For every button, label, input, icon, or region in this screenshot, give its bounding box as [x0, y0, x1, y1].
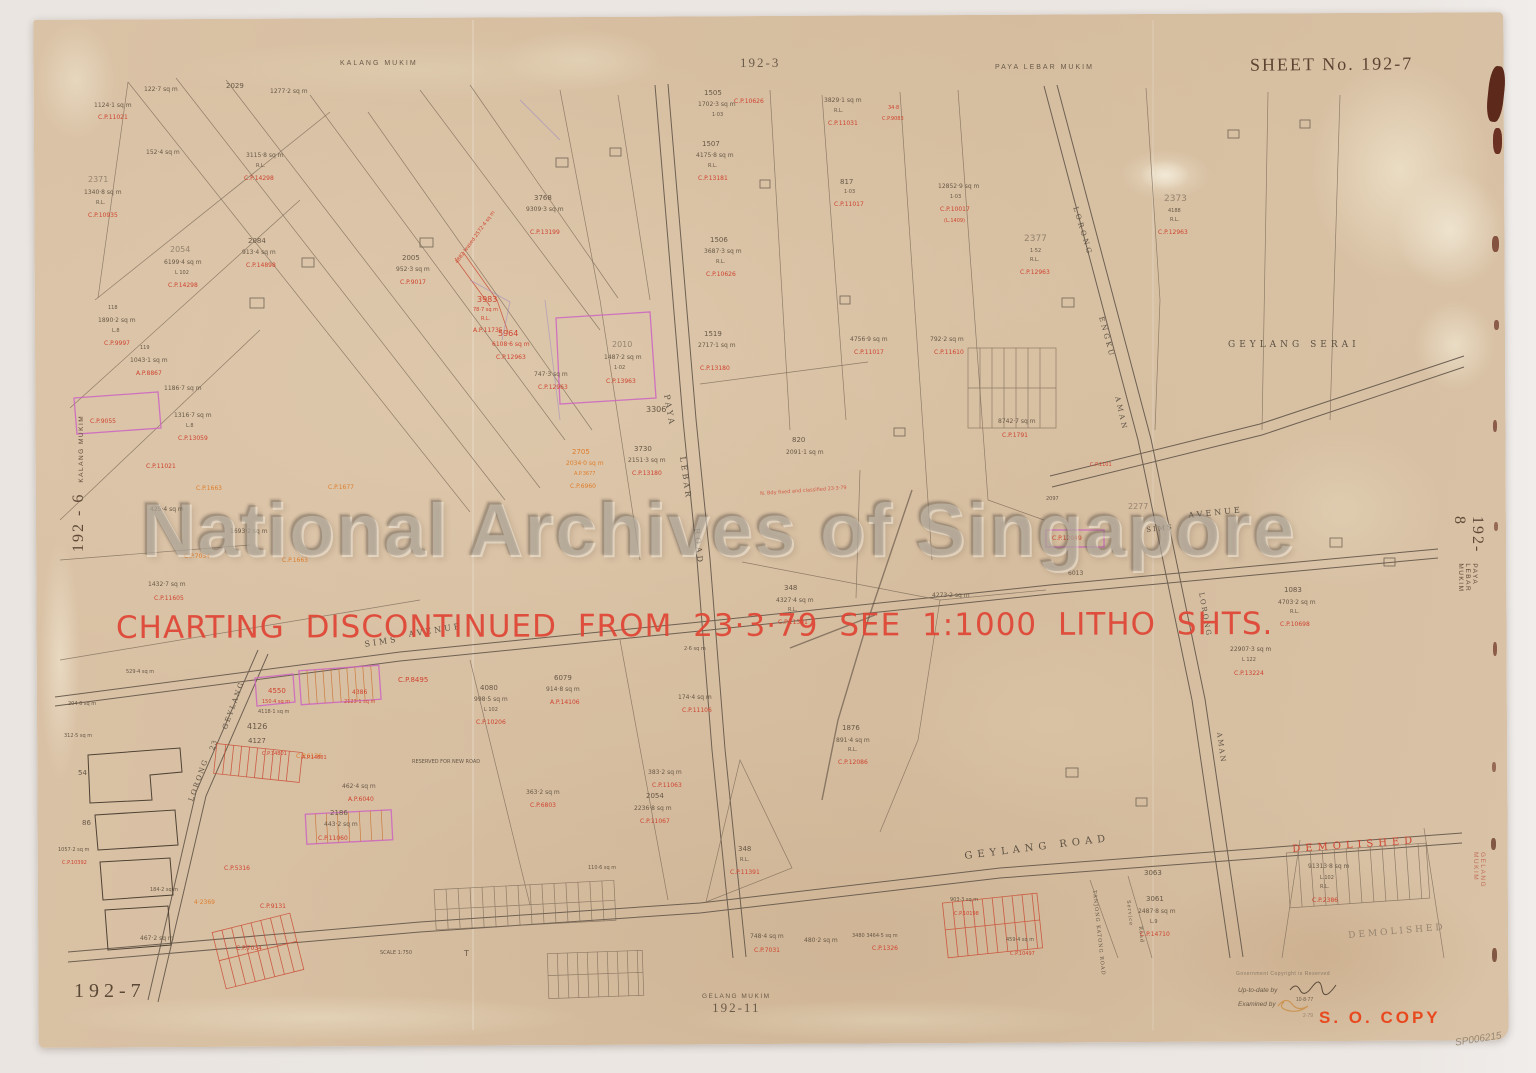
examined-label: Examined by	[1238, 1001, 1276, 1008]
right-mukim-label: PAYA LEBAR MUKIM	[1457, 563, 1478, 592]
archives-watermark: National Archives of Singapore	[140, 486, 1295, 573]
adjoining-sheet-top: 192-3	[740, 55, 780, 71]
up-to-date-label: Up-to-date by	[1238, 987, 1277, 994]
up-to-date-date: 10·8·77	[1296, 997, 1313, 1003]
charting-discontinued-note: CHARTING DISCONTINUED FROM 23·3·79 SEE 1…	[116, 606, 1273, 646]
signature-up-to-date	[1290, 982, 1336, 995]
scanned-map-page: { "colors":{"paper":"#d9c2a5","scan_bg":…	[0, 0, 1536, 1073]
top-left-mukim-label: KALANG MUKIM	[340, 60, 418, 67]
left-mukim-label: KALANG MUKIM	[78, 415, 85, 483]
adjoining-sheet-left: 192 - 6 KALANG MUKIM	[70, 415, 88, 552]
bottom-left-sheet-number: 192-7	[74, 980, 146, 1003]
adjoining-sheet-bottom: GELANG MUKIM 192-11	[702, 993, 771, 1016]
adjoining-sheet-right: 192-8 PAYA LEBAR MUKIM	[1450, 516, 1486, 593]
copyright-note: Government Copyright is Reserved	[1236, 971, 1330, 977]
bottom-sheet-number: 192-11	[702, 1000, 771, 1016]
sheet-number-title: SHEET No. 192-7	[1250, 53, 1413, 75]
top-right-mukim-label: PAYA LEBAR MUKIM	[995, 64, 1094, 71]
right-sheet-number: 192-8	[1450, 516, 1486, 553]
bottom-mukim-label: GELANG MUKIM	[702, 993, 771, 1000]
right-lower-mukim-label: GELANG MUKIM	[1472, 852, 1486, 902]
left-sheet-number: 192 - 6	[70, 493, 88, 552]
market-block	[968, 348, 1056, 428]
examined-date: 2·79	[1303, 1013, 1313, 1019]
right-lower-mukim: GELANG MUKIM	[1472, 852, 1486, 902]
so-copy-stamp: S. O. COPY	[1319, 1008, 1441, 1028]
